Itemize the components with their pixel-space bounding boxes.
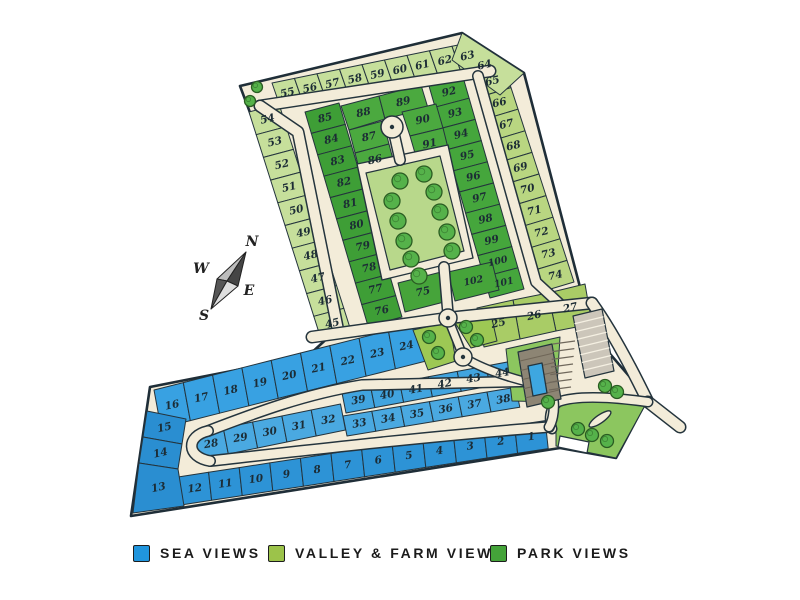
park-views-swatch xyxy=(490,545,507,562)
lot-44-label: 44 xyxy=(494,366,510,380)
legend-item-valley: VALLEY & FARM VIEWS xyxy=(268,544,505,562)
legend-item-sea: SEA VIEWS xyxy=(133,544,261,562)
lot-2-label: 2 xyxy=(495,435,505,448)
lot-43-label: 43 xyxy=(465,372,481,386)
road xyxy=(648,402,680,427)
valley-farm-views-swatch xyxy=(268,545,285,562)
lot-41-label: 41 xyxy=(408,382,424,396)
lot-34-label: 34 xyxy=(380,412,396,426)
compass-label-n: N xyxy=(245,234,260,250)
sea-views-label: SEA VIEWS xyxy=(160,545,261,561)
lot-42-label: 42 xyxy=(437,377,453,391)
legend-item-park: PARK VIEWS xyxy=(490,544,631,562)
subdivision-map: NWES555657585960616263545352515049484746… xyxy=(0,0,800,540)
compass-label-e: E xyxy=(243,283,255,299)
compass-label-w: W xyxy=(193,261,210,277)
legend: SEA VIEWS VALLEY & FARM VIEWS PARK VIEWS xyxy=(0,544,800,568)
lot-12-label: 12 xyxy=(187,482,203,496)
lot-11-label: 11 xyxy=(217,477,233,491)
lot-10-label: 10 xyxy=(248,472,265,486)
roundabout-center xyxy=(446,316,450,320)
park-views-label: PARK VIEWS xyxy=(517,545,631,561)
valley-farm-views-label: VALLEY & FARM VIEWS xyxy=(295,545,505,561)
cul-de-sac-center xyxy=(390,125,394,129)
compass-label-s: S xyxy=(199,308,209,324)
sea-views-swatch xyxy=(133,545,150,562)
lot-33-label: 33 xyxy=(351,416,367,430)
site-plan-page: NWES555657585960616263545352515049484746… xyxy=(0,0,800,600)
lot-35-label: 35 xyxy=(409,407,425,421)
road xyxy=(444,267,448,314)
lot-31-label: 31 xyxy=(291,419,307,433)
roundabout-center xyxy=(461,355,465,359)
lot-32-label: 32 xyxy=(320,413,336,427)
